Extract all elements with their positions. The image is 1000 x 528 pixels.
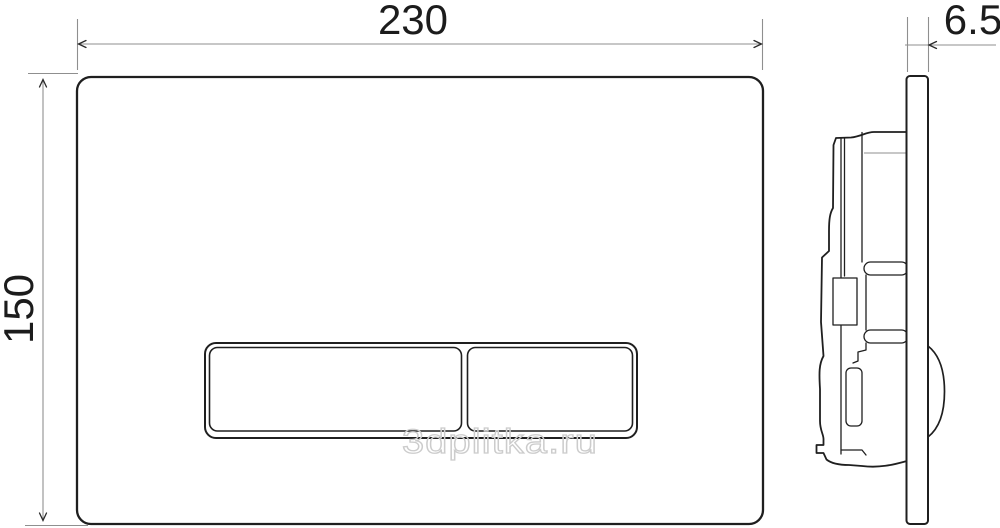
large-flush-button — [210, 348, 462, 432]
latch-box — [833, 278, 857, 325]
height-dimension: 150 — [0, 74, 88, 526]
technical-drawing-canvas: 230 150 6.5 — [0, 0, 1000, 528]
mounting-lug-lower — [864, 330, 908, 343]
button-dome-profile — [928, 346, 945, 437]
mounting-lug-upper — [864, 262, 908, 275]
small-flush-button — [468, 348, 633, 432]
width-dimension: 230 — [78, 0, 763, 70]
actuator-block — [846, 368, 862, 426]
depth-dimension-label: 6.5 — [944, 0, 1000, 43]
depth-dimension: 6.5 — [905, 0, 1000, 72]
height-dimension-label: 150 — [0, 274, 42, 344]
technical-drawing-page: 230 150 6.5 — [0, 0, 1000, 528]
watermark: 3dplitka.ru — [402, 423, 598, 461]
side-view — [817, 76, 945, 524]
flush-plate-side-profile — [907, 76, 929, 524]
width-dimension-label: 230 — [378, 0, 448, 43]
